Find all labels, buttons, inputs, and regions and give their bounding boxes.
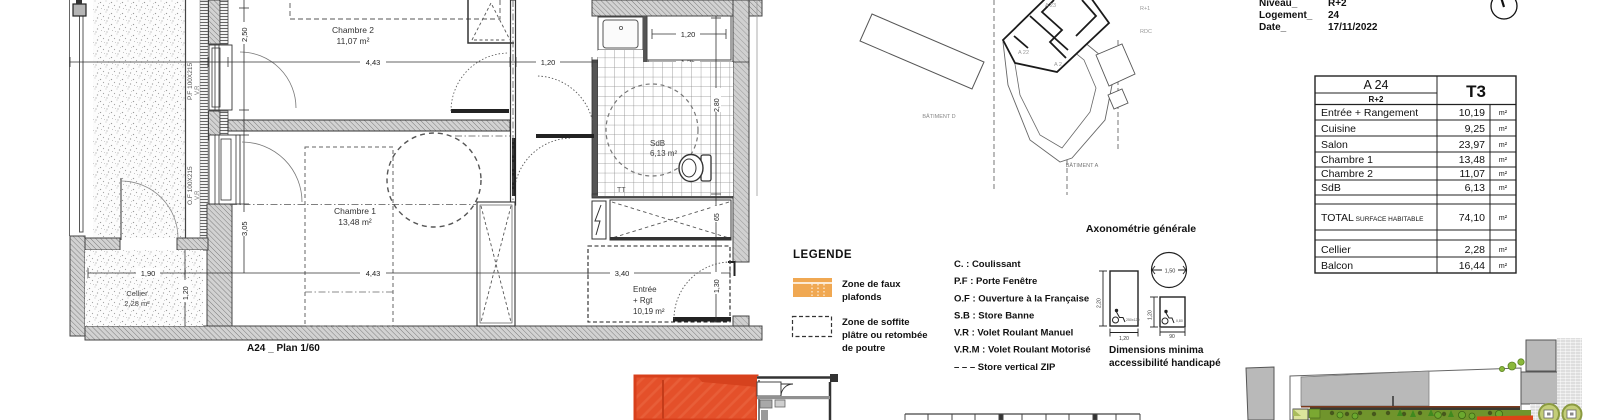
- svg-text:m²: m²: [1499, 215, 1508, 222]
- svg-text:Salon: Salon: [1321, 139, 1348, 151]
- svg-text:m²: m²: [1499, 110, 1508, 117]
- svg-text:23,97: 23,97: [1459, 139, 1485, 151]
- svg-text:BÂTIMENT D: BÂTIMENT D: [922, 113, 955, 120]
- svg-text:V.R.M : Volet Roulant Motorisé: V.R.M : Volet Roulant Motorisé: [954, 345, 1091, 356]
- svg-text:RDC: RDC: [1140, 29, 1152, 35]
- svg-text:Dimensions minima: Dimensions minima: [1109, 345, 1204, 356]
- svg-text:Chambre 1: Chambre 1: [334, 206, 376, 216]
- svg-text:2,28: 2,28: [1465, 244, 1486, 256]
- svg-text:Chambre 1: Chambre 1: [1321, 154, 1373, 166]
- svg-text:– – – Store vertical ZIP: – – – Store vertical ZIP: [954, 362, 1056, 373]
- svg-text:1,50: 1,50: [1165, 269, 1176, 275]
- svg-text:11,07 m²: 11,07 m²: [337, 36, 370, 46]
- svg-text:13,48 m²: 13,48 m²: [338, 217, 372, 227]
- svg-text:m²: m²: [1499, 126, 1508, 133]
- svg-text:R+2: R+2: [1328, 0, 1347, 9]
- svg-text:TT: TT: [617, 187, 626, 194]
- svg-text:P.F : Porte Fenêtre: P.F : Porte Fenêtre: [954, 276, 1037, 287]
- svg-text:17/11/2022: 17/11/2022: [1328, 22, 1378, 33]
- svg-text:m²: m²: [1499, 157, 1508, 164]
- svg-text:Balcon: Balcon: [1321, 260, 1353, 272]
- svg-text:Entrée + Rangement: Entrée + Rangement: [1321, 107, 1418, 119]
- svg-text:1,20: 1,20: [1148, 310, 1154, 320]
- svg-text:Zone de faux: Zone de faux: [842, 279, 901, 290]
- svg-text:Chambre 2: Chambre 2: [332, 25, 374, 35]
- svg-text:accessibilité handicapé: accessibilité handicapé: [1109, 358, 1221, 369]
- svg-text:A 23: A 23: [1045, 3, 1056, 9]
- svg-text:P.F 100X215: P.F 100X215: [187, 63, 194, 100]
- svg-text:6,13 m²: 6,13 m²: [650, 149, 677, 158]
- svg-text:1,20: 1,20: [1119, 336, 1129, 342]
- svg-text:16,44: 16,44: [1459, 260, 1485, 272]
- svg-text:LEGENDE: LEGENDE: [793, 249, 852, 261]
- svg-text:1,30: 1,30: [714, 279, 721, 293]
- svg-text:A 24: A 24: [1363, 78, 1388, 92]
- svg-text:65: 65: [714, 213, 721, 221]
- svg-text:A24 _ Plan 1/60: A24 _ Plan 1/60: [247, 343, 320, 354]
- svg-text:3,05: 3,05: [240, 221, 249, 236]
- svg-text:24: 24: [1328, 10, 1340, 21]
- svg-text:plâtre ou retombée: plâtre ou retombée: [842, 330, 928, 341]
- svg-text:R+2: R+2: [1369, 95, 1384, 104]
- svg-text:V.R: V.R: [195, 190, 201, 200]
- svg-text:9,25: 9,25: [1465, 123, 1486, 135]
- svg-text:Axonométrie générale: Axonométrie générale: [1086, 223, 1196, 235]
- svg-text:Niveau_: Niveau_: [1259, 0, 1298, 9]
- svg-text:V.R: V.R: [195, 85, 201, 95]
- svg-text:T3: T3: [1466, 82, 1486, 101]
- svg-text:m²: m²: [1499, 263, 1508, 270]
- svg-text:m²: m²: [1499, 247, 1508, 254]
- svg-text:TOTAL SURFACE HABITABLE: TOTAL SURFACE HABITABLE: [1321, 212, 1424, 224]
- svg-text:2,20: 2,20: [1097, 298, 1103, 308]
- svg-text:Cuisine: Cuisine: [1321, 123, 1356, 135]
- svg-text:2,28 m²: 2,28 m²: [124, 299, 150, 308]
- svg-text:Entrée: Entrée: [633, 285, 657, 294]
- svg-text:6,13: 6,13: [1465, 182, 1486, 194]
- svg-text:SdB: SdB: [1321, 182, 1341, 194]
- svg-text:C. : Coulissant: C. : Coulissant: [954, 259, 1021, 270]
- svg-text:m²: m²: [1499, 171, 1508, 178]
- svg-text:0,80: 0,80: [1176, 319, 1183, 323]
- svg-text:13,48: 13,48: [1459, 154, 1485, 166]
- svg-text:Zone de soffite: Zone de soffite: [842, 317, 910, 328]
- svg-text:BÂTIMENT A: BÂTIMENT A: [1066, 162, 1099, 169]
- svg-text:A 2: A 2: [1054, 62, 1062, 68]
- svg-text:10,19 m²: 10,19 m²: [633, 307, 665, 316]
- svg-text:3,40: 3,40: [615, 269, 630, 278]
- svg-text:m²: m²: [1499, 185, 1508, 192]
- svg-text:O.F : Ouverture à la Française: O.F : Ouverture à la Française: [954, 294, 1089, 305]
- svg-text:1,20: 1,20: [183, 286, 190, 300]
- svg-text:250x120: 250x120: [1126, 318, 1139, 322]
- svg-text:m²: m²: [1499, 142, 1508, 149]
- svg-text:1,90: 1,90: [141, 269, 156, 278]
- svg-text:1,20: 1,20: [681, 30, 696, 39]
- svg-text:SdB: SdB: [650, 139, 665, 148]
- svg-text:S.B : Store Banne: S.B : Store Banne: [954, 311, 1034, 322]
- svg-text:1,20: 1,20: [541, 58, 556, 67]
- svg-text:10,19: 10,19: [1459, 107, 1485, 119]
- svg-text:Chambre 2: Chambre 2: [1321, 168, 1373, 180]
- svg-text:2,50: 2,50: [240, 27, 249, 42]
- svg-text:4,43: 4,43: [366, 269, 381, 278]
- svg-text:de poutre: de poutre: [842, 343, 885, 354]
- svg-text:4,43: 4,43: [366, 58, 381, 67]
- svg-text:Date_: Date_: [1259, 22, 1287, 33]
- svg-text:V.R : Volet Roulant Manuel: V.R : Volet Roulant Manuel: [954, 328, 1073, 339]
- svg-text:Cellier: Cellier: [1321, 244, 1351, 256]
- svg-text:2,80: 2,80: [714, 98, 721, 112]
- svg-text:+ Rgt: + Rgt: [633, 296, 653, 305]
- svg-text:R+1: R+1: [1140, 6, 1150, 12]
- svg-text:O.F 100X215: O.F 100X215: [187, 166, 194, 205]
- svg-text:74,10: 74,10: [1459, 212, 1485, 224]
- svg-text:plafonds: plafonds: [842, 292, 882, 303]
- svg-text:Cellier: Cellier: [126, 289, 148, 298]
- svg-text:Logement_: Logement_: [1259, 10, 1313, 21]
- svg-text:90: 90: [1169, 334, 1175, 340]
- svg-text:11,07: 11,07: [1460, 168, 1486, 180]
- svg-text:A 22: A 22: [1018, 50, 1029, 56]
